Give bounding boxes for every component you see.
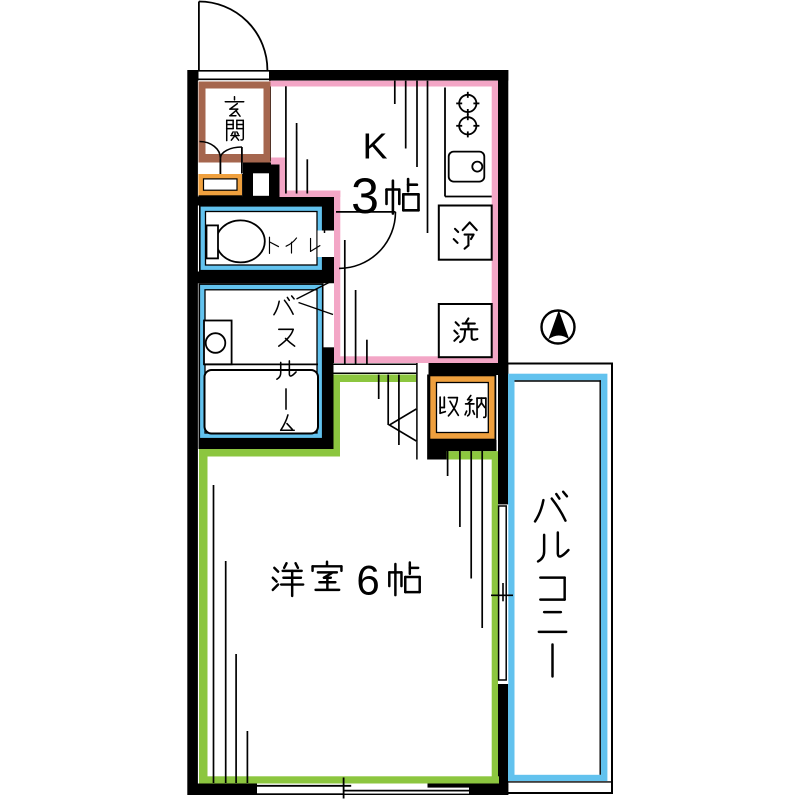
svg-text:6: 6 [356,557,379,604]
svg-text:K: K [363,126,388,167]
svg-text:3: 3 [351,168,379,224]
